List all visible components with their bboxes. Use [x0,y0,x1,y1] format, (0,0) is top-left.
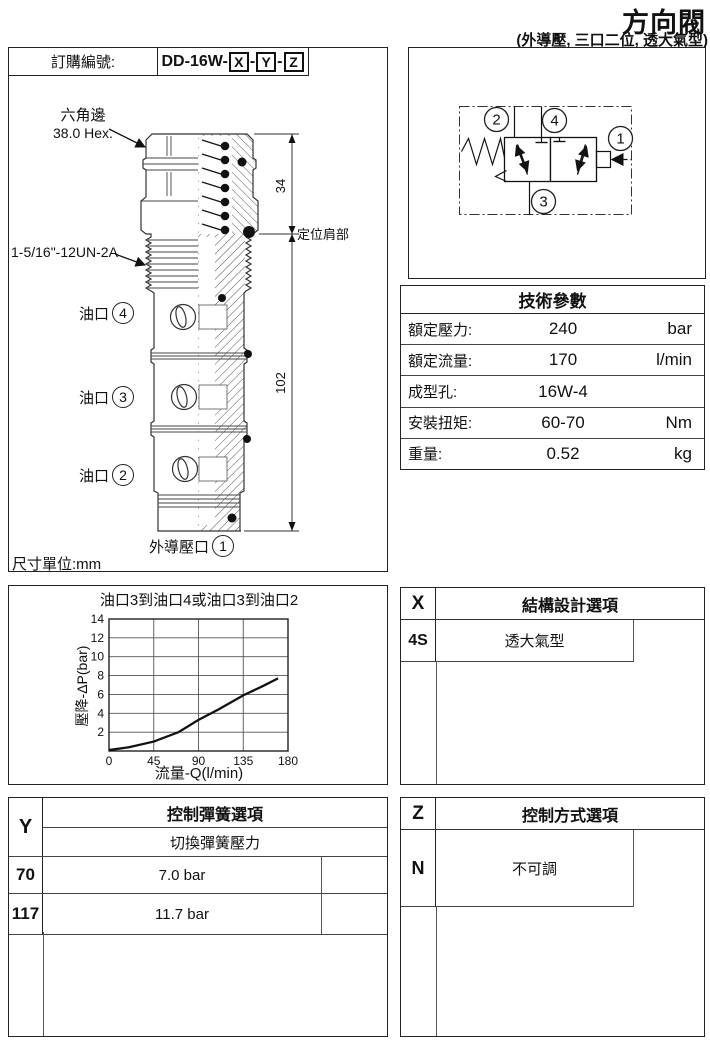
pilot-port-label: 外導壓口 1 [149,535,234,557]
option-x-row-4s: 4S 透大氣型 [401,620,704,662]
option-code-70: 70 [9,857,43,893]
port-label-text: 油口 [79,387,109,408]
schematic-port-2: 2 [492,112,500,129]
option-label-4s: 透大氣型 [436,620,634,662]
dimension-102: 102 [273,372,288,394]
svg-text:6: 6 [97,687,104,701]
svg-text:90: 90 [192,754,206,768]
valve-schematic-symbol: 2 4 1 3 [409,48,704,277]
param-label: 安裝扭矩: [401,412,516,433]
dimension-34: 34 [273,179,288,193]
param-value: 0.52 [516,444,610,464]
thread-leader-arrow [115,254,145,265]
drawing-panel: 訂購編號: DD-16W-X-Y-Z [8,47,388,572]
svg-text:4: 4 [97,706,104,720]
option-x-empty-cell [634,620,704,662]
option-code-117: 117 [9,894,43,934]
svg-text:135: 135 [233,754,253,768]
param-value: 240 [516,319,610,339]
hex-label-size: 38.0 Hex. [53,125,113,141]
option-code-n: N [401,830,436,907]
tech-table-title: 技術參數 [401,286,704,314]
option-x-title: 結構設計選項 [436,588,704,619]
order-number-label: 訂購編號: [9,48,158,75]
option-box-y: Y 控制彈簧選項 切換彈簧壓力 70 7.0 bar 117 11.7 bar [8,797,388,1037]
param-unit: Nm [610,413,704,433]
param-value: 60-70 [516,413,610,433]
thread-label: 1-5/16"-12UN-2A [11,244,118,260]
option-label-70: 7.0 bar [43,857,322,893]
param-label: 重量: [401,443,516,464]
option-z-row-n: N 不可調 [401,830,704,907]
order-code-z: Z [284,52,304,72]
chart-ylabel: 壓降-ΔP(bar) [74,646,90,727]
units-label: 尺寸單位:mm [12,553,101,574]
param-label: 額定壓力: [401,319,516,340]
pressure-drop-chart: 油口3到油口4或油口3到油口2 壓降-ΔP(bar) 流量-Q(l/min) 0… [9,586,386,783]
code-column-divider [43,932,44,1036]
port-4-circle: 4 [112,302,134,324]
table-row: 安裝扭矩: 60-70 Nm [401,408,704,439]
port-label-text: 油口 [79,303,109,324]
table-row: 重量: 0.52 kg [401,439,704,469]
option-z-title: 控制方式選項 [436,798,704,829]
order-number-value: DD-16W-X-Y-Z [158,48,308,75]
option-y-row-117: 117 11.7 bar [9,894,387,935]
table-row: 成型孔: 16W-4 [401,376,704,407]
param-unit: l/min [610,350,704,370]
option-y-subtitle: 切換彈簧壓力 [43,828,387,856]
port-label-4: 油口 4 [79,302,134,324]
option-y-title: 控制彈簧選項 [43,798,387,828]
order-code-y: Y [256,52,276,72]
schematic-port-4: 4 [550,113,558,130]
shoulder-label: 定位肩部 [297,227,349,242]
code-column-divider [436,906,437,1036]
option-y-code: Y [9,798,43,856]
option-z-header: Z 控制方式選項 [401,798,704,830]
param-unit: bar [610,319,704,339]
option-z-empty-cell [634,830,704,907]
section-hatch-region [198,134,258,531]
param-label: 成型孔: [401,381,516,402]
chart-title: 油口3到油口4或油口3到油口2 [100,592,298,609]
svg-text:10: 10 [91,650,105,664]
svg-text:45: 45 [147,754,161,768]
port-label-text: 油口 [79,465,109,486]
port-holes [171,305,198,482]
param-label: 額定流量: [401,350,516,371]
port-label-3: 油口 3 [79,386,134,408]
option-box-z: Z 控制方式選項 N 不可調 [400,797,705,1037]
chart-plot-area: 045901351802468101214 [91,612,299,768]
hex-label: 六角邊 38.0 Hex. [53,104,113,141]
svg-text:8: 8 [97,669,104,683]
option-y-empty-cell [322,894,387,934]
svg-text:180: 180 [278,754,298,768]
option-label-n: 不可調 [436,830,634,907]
schematic-port-3: 3 [539,194,547,211]
table-row: 額定流量: 170 l/min [401,345,704,376]
order-sep-2: - [277,53,282,71]
order-prefix: DD-16W- [162,53,228,71]
pilot-port-1-circle: 1 [212,535,234,557]
port-3-circle: 3 [112,386,134,408]
order-code-x: X [229,52,249,72]
hex-label-cn: 六角邊 [53,104,113,125]
option-label-117: 11.7 bar [43,894,322,934]
spring-symbol [462,139,505,165]
schematic-port-1: 1 [616,131,624,148]
order-number-row: 訂購編號: DD-16W-X-Y-Z [9,48,309,76]
svg-text:14: 14 [91,612,105,626]
spool-bore [199,237,215,525]
svg-text:12: 12 [91,631,105,645]
schematic-panel: 2 4 1 3 [408,47,706,279]
option-z-code: Z [401,798,436,829]
tech-parameters-table: 技術參數 額定壓力: 240 bar 額定流量: 170 l/min 成型孔: … [400,285,705,470]
pilot-label-text: 外導壓口 [149,536,209,557]
pressure-drop-chart-panel: 油口3到油口4或油口3到油口2 壓降-ΔP(bar) 流量-Q(l/min) 0… [8,585,388,785]
table-row: 額定壓力: 240 bar [401,314,704,345]
datasheet-page: 方向閥 (外導壓, 三口二位, 透大氣型) 訂購編號: DD-16W-X-Y-Z [0,0,710,1040]
param-value: 16W-4 [516,382,610,402]
option-y-header: Y 控制彈簧選項 切換彈簧壓力 [9,798,387,857]
code-column-divider [436,661,437,784]
hex-leader-arrow [109,129,145,147]
param-unit: kg [610,444,704,464]
param-value: 170 [516,350,610,370]
svg-text:0: 0 [106,754,113,768]
port-label-2: 油口 2 [79,464,134,486]
pilot-actuator [597,152,632,168]
option-x-header: X 結構設計選項 [401,588,704,620]
option-code-4s: 4S [401,620,436,662]
port-2-circle: 2 [112,464,134,486]
svg-text:2: 2 [97,725,104,739]
order-sep-1: - [250,53,255,71]
option-y-empty-cell [322,857,387,893]
option-x-code: X [401,588,436,619]
option-box-x: X 結構設計選項 4S 透大氣型 [400,587,705,785]
option-y-row-70: 70 7.0 bar [9,857,387,894]
